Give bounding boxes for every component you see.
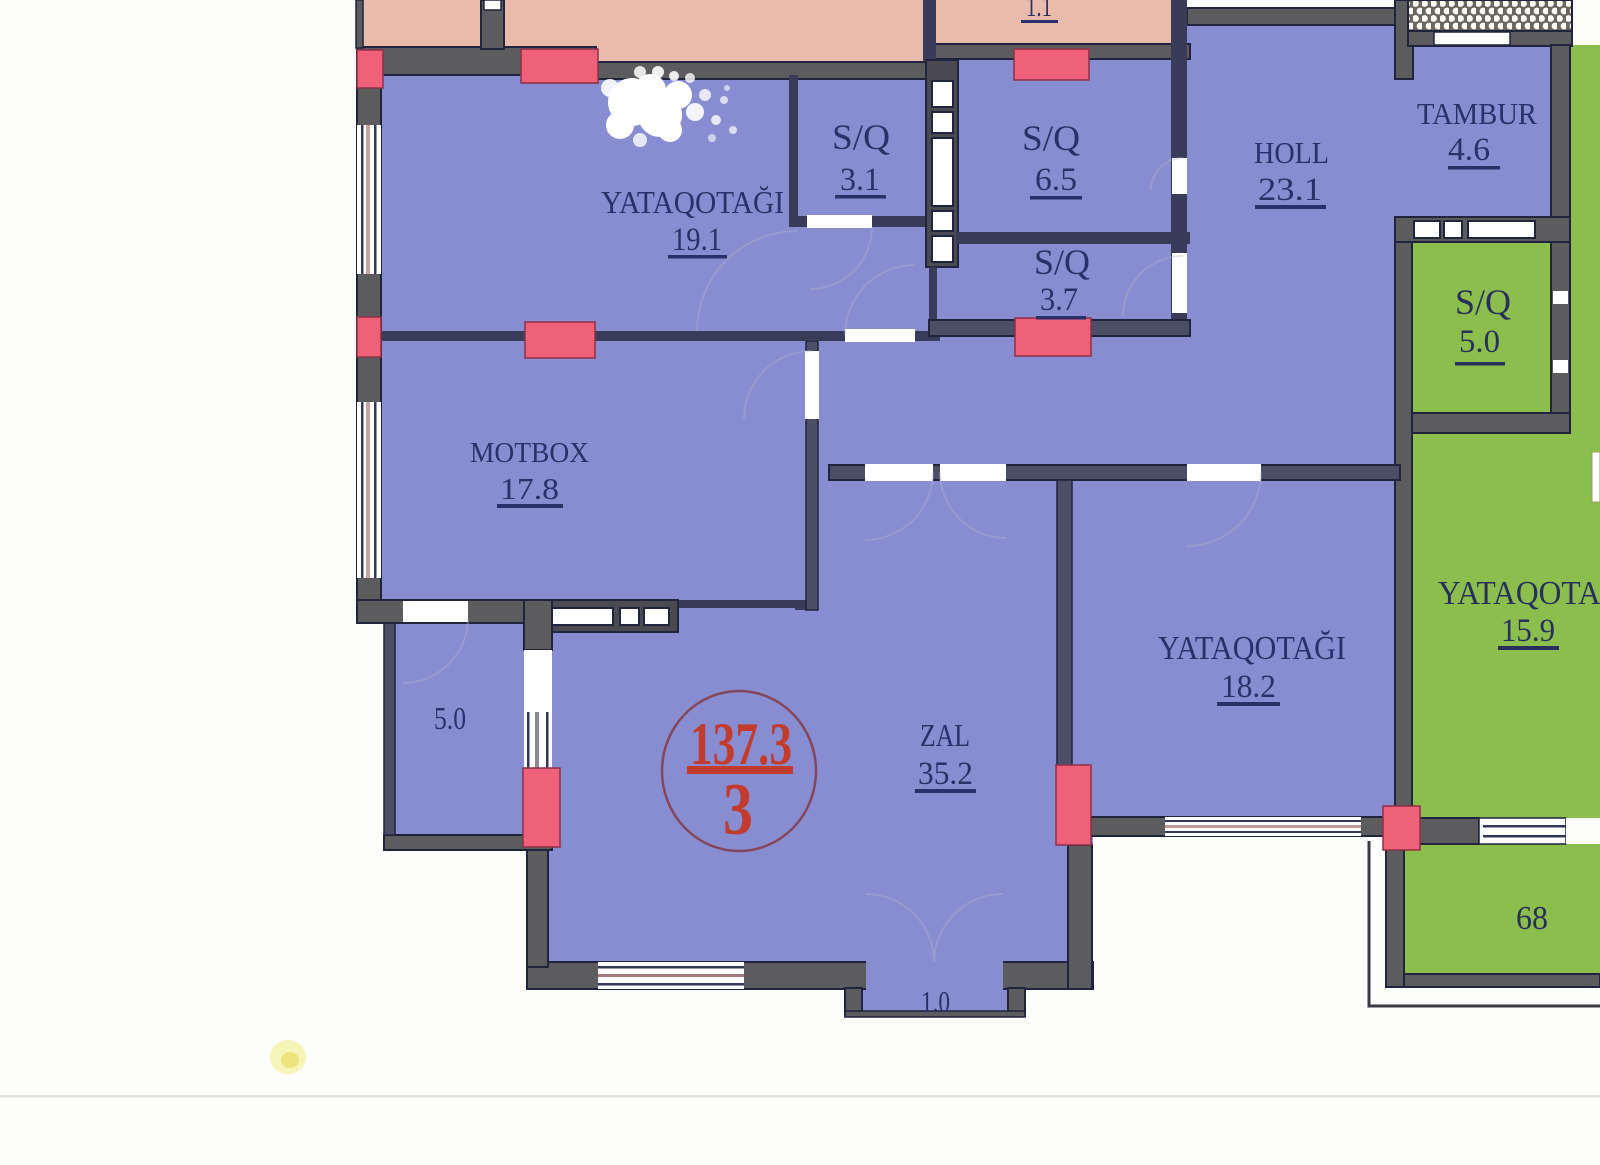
svg-text:3: 3 [723, 769, 753, 851]
svg-text:S/Q: S/Q [1034, 242, 1090, 282]
svg-text:3.1: 3.1 [840, 162, 880, 198]
svg-text:3.7: 3.7 [1040, 282, 1078, 318]
svg-text:TAMBUR: TAMBUR [1417, 96, 1537, 131]
svg-text:18.2: 18.2 [1221, 669, 1276, 705]
svg-text:35.2: 35.2 [918, 756, 973, 792]
svg-text:5.0: 5.0 [434, 700, 466, 736]
svg-text:ZAL: ZAL [920, 717, 970, 753]
svg-text:4.6: 4.6 [1448, 132, 1490, 168]
svg-text:1.1: 1.1 [1026, 0, 1052, 23]
svg-text:5.0: 5.0 [1459, 324, 1500, 360]
svg-text:MOTBOX: MOTBOX [470, 438, 589, 469]
svg-text:15.9: 15.9 [1501, 613, 1555, 649]
svg-text:HOLL: HOLL [1254, 135, 1329, 170]
svg-text:6.5: 6.5 [1035, 162, 1077, 198]
svg-text:17.8: 17.8 [500, 471, 559, 506]
svg-text:19.1: 19.1 [672, 222, 722, 258]
svg-text:S/Q: S/Q [1022, 118, 1080, 158]
svg-text:1.0: 1.0 [921, 984, 950, 1019]
svg-text:23.1: 23.1 [1258, 172, 1322, 208]
svg-text:YATAQOTAĞI: YATAQOTAĞI [1438, 575, 1600, 612]
svg-text:S/Q: S/Q [1455, 282, 1511, 322]
svg-text:YATAQOTAĞI: YATAQOTAĞI [601, 184, 784, 220]
svg-text:68: 68 [1516, 900, 1548, 937]
svg-text:S/Q: S/Q [832, 117, 890, 157]
svg-text:YATAQOTAĞI: YATAQOTAĞI [1158, 630, 1346, 667]
